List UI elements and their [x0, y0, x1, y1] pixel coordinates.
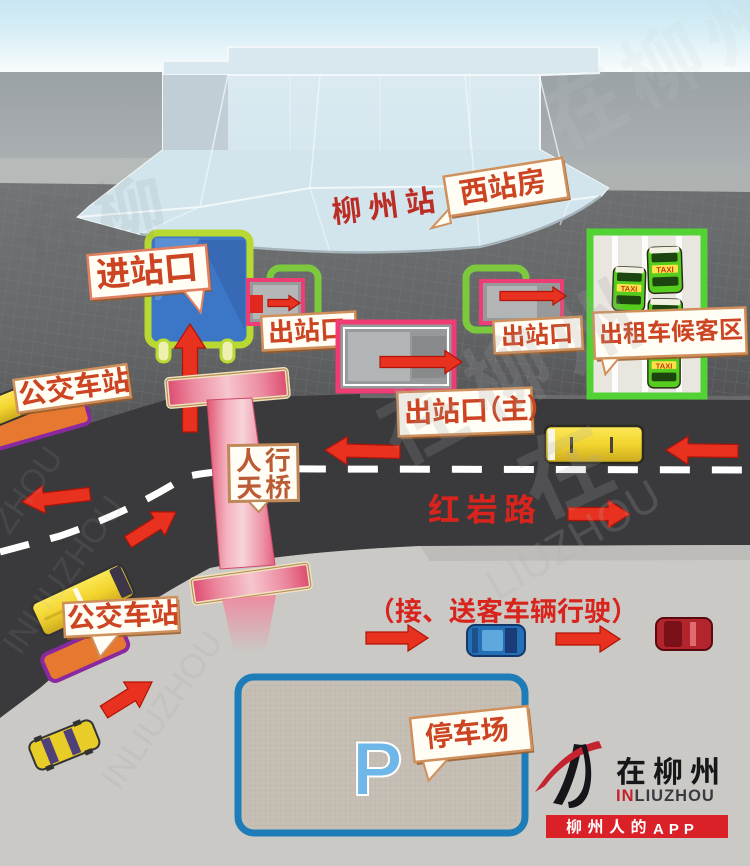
svg-text:APP: APP [653, 821, 699, 838]
svg-text:TAXI: TAXI [620, 284, 637, 294]
svg-text:P: P [352, 727, 403, 812]
svg-text:INLIUZHOU: INLIUZHOU [616, 787, 715, 805]
svg-text:TAXI: TAXI [656, 265, 674, 275]
svg-text:TAXI: TAXI [656, 361, 673, 370]
